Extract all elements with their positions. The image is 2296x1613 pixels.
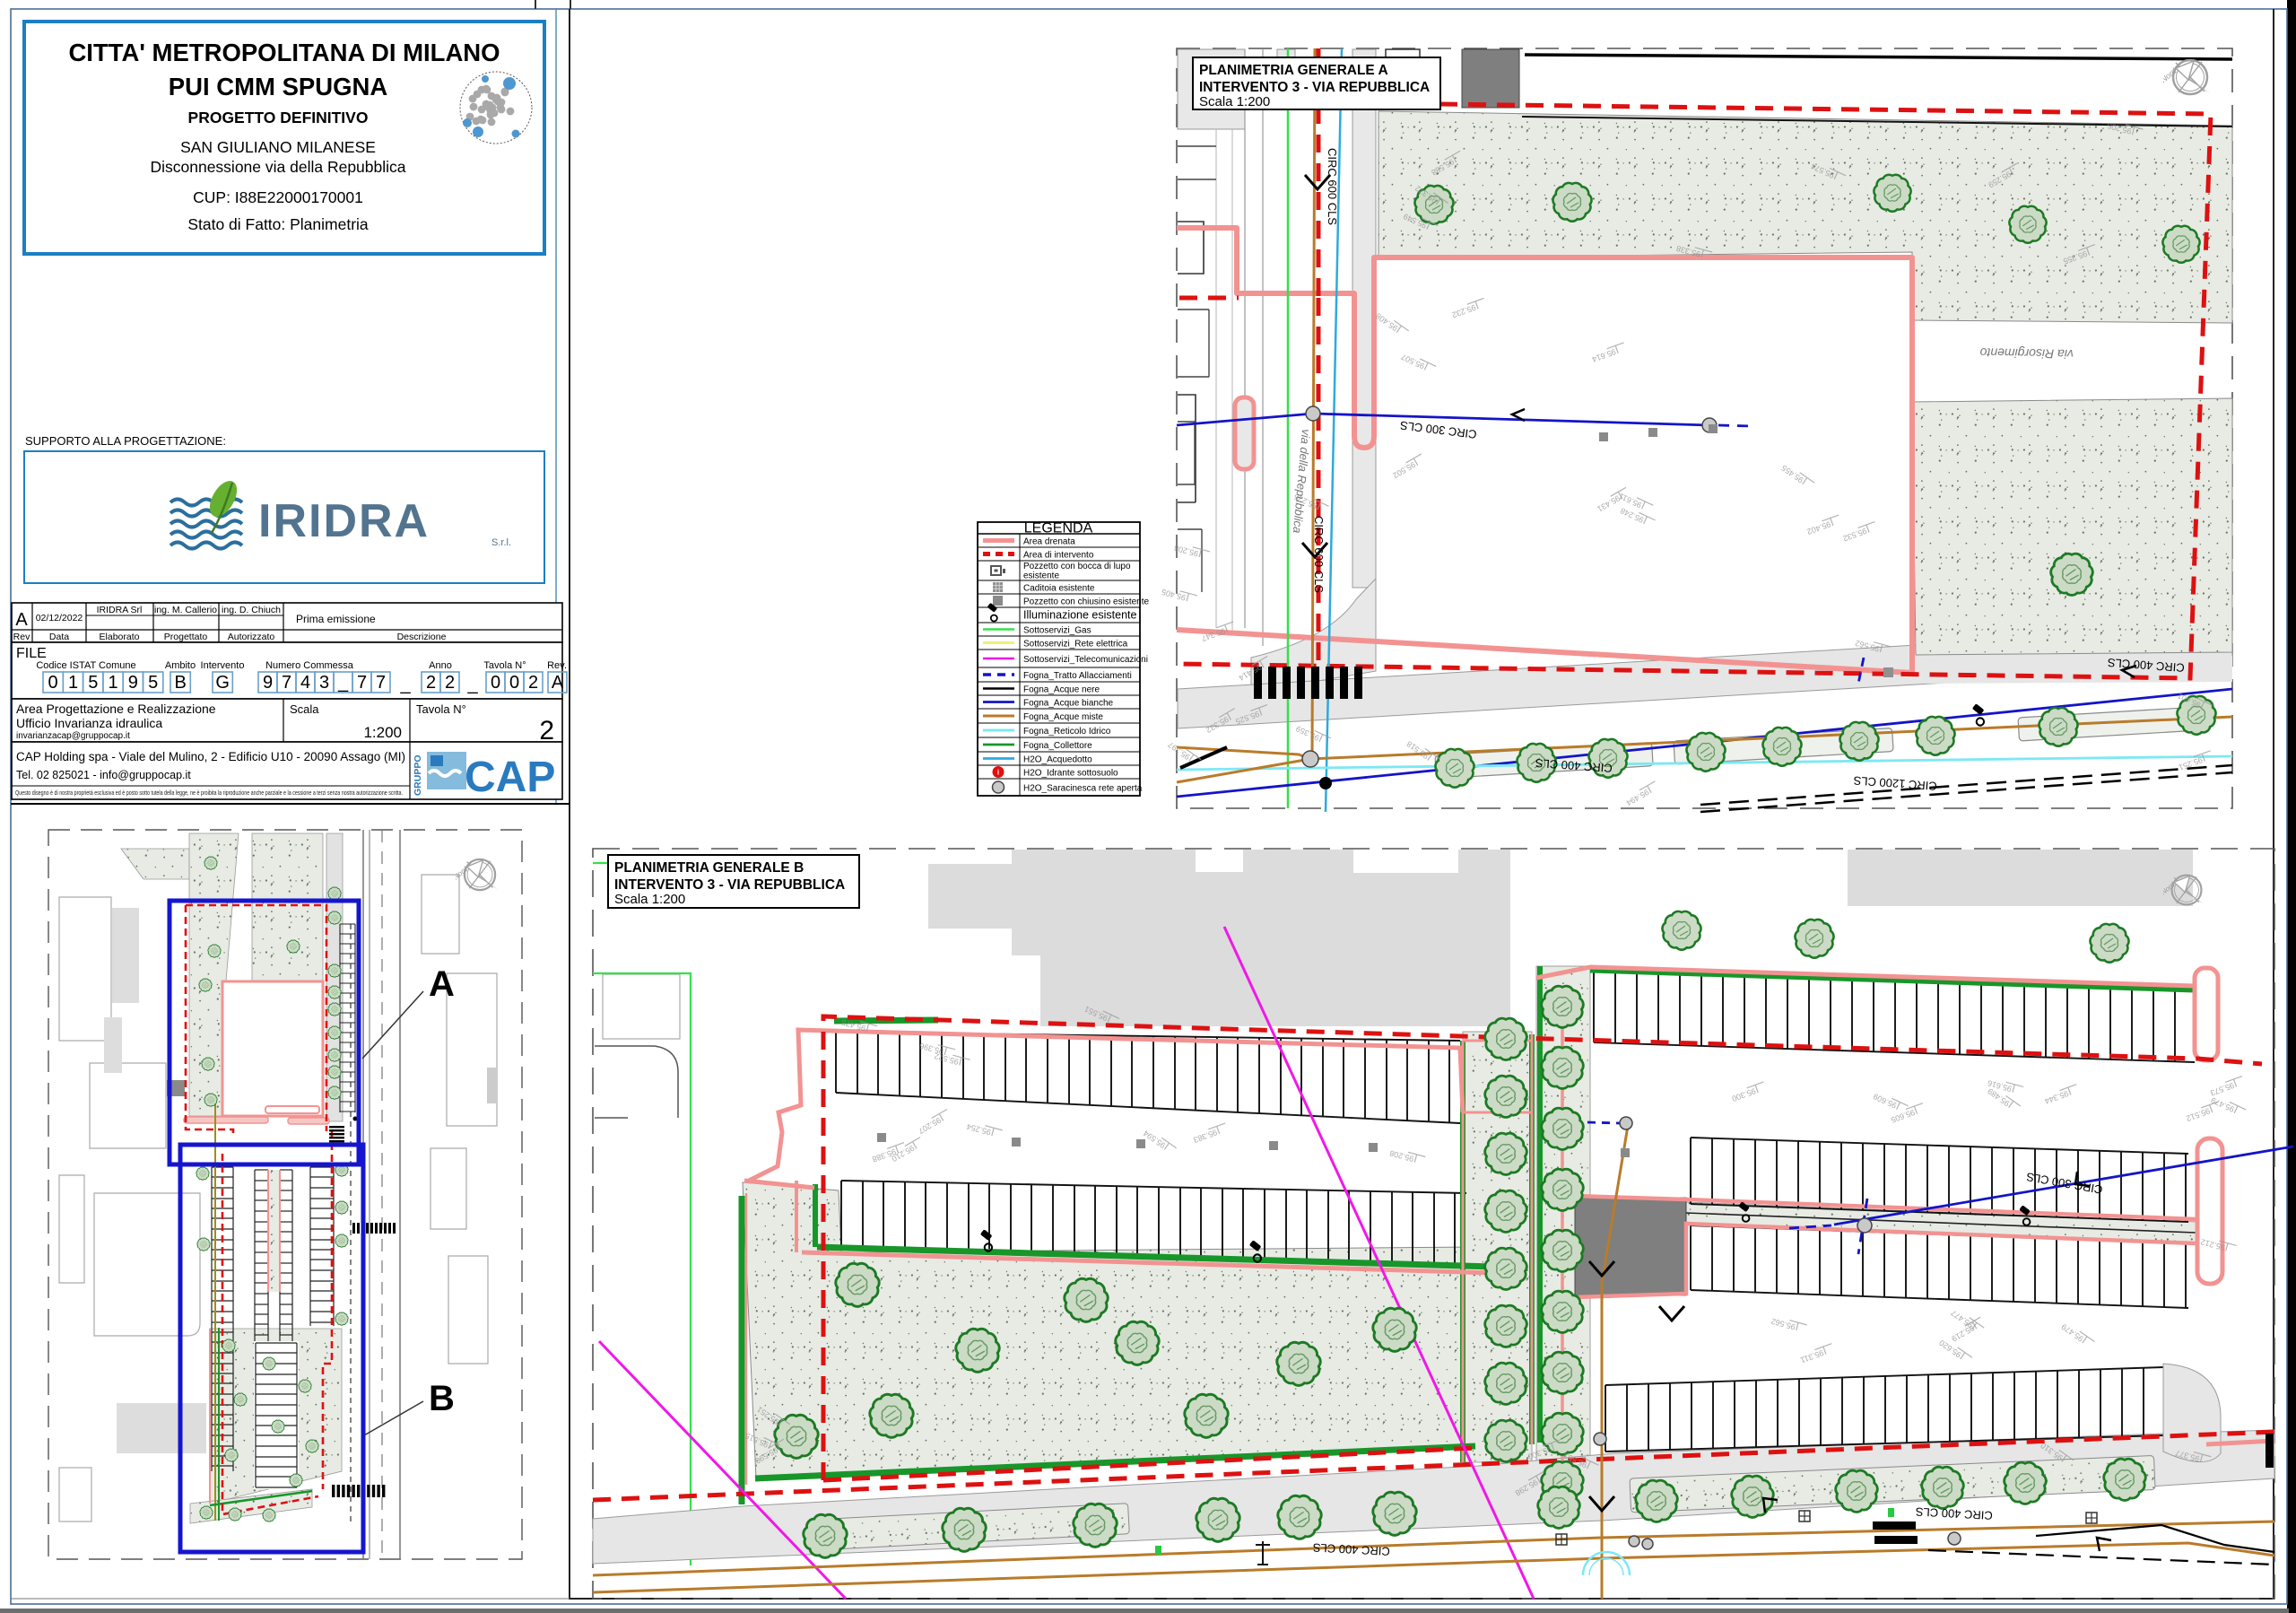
svg-text:5: 5: [148, 673, 158, 693]
svg-text:0: 0: [491, 673, 500, 693]
svg-text:Tel. 02 825021 - info@gruppoca: Tel. 02 825021 - info@gruppocap.it: [16, 769, 191, 781]
svg-text:Prima emissione: Prima emissione: [296, 613, 376, 625]
svg-text:Fogna_Tratto Allacciamenti: Fogna_Tratto Allacciamenti: [1023, 671, 1132, 681]
svg-text:CUP: I88E22000170001: CUP: I88E22000170001: [193, 188, 363, 206]
svg-text:PUI CMM SPUGNA: PUI CMM SPUGNA: [169, 73, 388, 100]
svg-text:Ufficio Invarianza idraulica: Ufficio Invarianza idraulica: [16, 716, 162, 730]
svg-text:0: 0: [509, 673, 519, 693]
svg-text:Anno: Anno: [429, 660, 452, 671]
svg-text:Tavola N°: Tavola N°: [416, 702, 466, 716]
svg-text:Intervento: Intervento: [201, 660, 245, 671]
svg-text:1: 1: [68, 673, 78, 693]
svg-text:9: 9: [263, 673, 273, 693]
svg-text:H2O_Acquedotto: H2O_Acquedotto: [1023, 755, 1092, 765]
svg-text:Rev.: Rev.: [547, 660, 567, 671]
svg-text:2: 2: [445, 673, 455, 693]
svg-text:Fogna_Collettore: Fogna_Collettore: [1023, 741, 1092, 751]
svg-text:Scala 1:200: Scala 1:200: [1199, 94, 1270, 109]
svg-text:GRUPPO: GRUPPO: [413, 754, 423, 796]
svg-text:ing. M. Callerio: ing. M. Callerio: [154, 605, 217, 615]
svg-text:0: 0: [48, 673, 58, 693]
svg-text:SAN GIULIANO MILANESE: SAN GIULIANO MILANESE: [180, 138, 376, 156]
svg-text:FILE: FILE: [16, 646, 47, 661]
svg-text:PROGETTO DEFINITIVO: PROGETTO DEFINITIVO: [188, 109, 369, 126]
svg-text:3: 3: [319, 673, 329, 693]
svg-text:Ambito: Ambito: [165, 660, 196, 671]
svg-text:1:200: 1:200: [363, 724, 402, 741]
svg-text:Scala 1:200: Scala 1:200: [614, 892, 685, 907]
svg-text:Tavola N°: Tavola N°: [483, 660, 526, 671]
svg-text:Sottoservizi_Telecomunicazioni: Sottoservizi_Telecomunicazioni: [1023, 655, 1148, 665]
svg-text:_: _: [466, 675, 478, 694]
svg-text:i: i: [997, 769, 999, 777]
svg-text:PLANIMETRIA GENERALE B: PLANIMETRIA GENERALE B: [614, 860, 804, 876]
svg-text:9: 9: [128, 673, 138, 693]
svg-text:Questo disegno è di nostra pro: Questo disegno è di nostra proprietà esc…: [15, 789, 403, 797]
svg-text:Area Progettazione e Realizzaz: Area Progettazione e Realizzazione: [16, 702, 216, 716]
svg-text:via Risorgimento: via Risorgimento: [1979, 345, 2074, 362]
svg-text:H2O_Saracinesca rete aperta: H2O_Saracinesca rete aperta: [1023, 784, 1143, 794]
svg-text:02/12/2022: 02/12/2022: [36, 613, 83, 623]
svg-text:B: B: [175, 673, 187, 693]
svg-text:_: _: [337, 673, 349, 693]
svg-text:B: B: [429, 1379, 455, 1418]
svg-text:PLANIMETRIA GENERALE A: PLANIMETRIA GENERALE A: [1199, 63, 1388, 78]
svg-text:H2O_Idrante sottosuolo: H2O_Idrante sottosuolo: [1023, 769, 1118, 779]
svg-text:A: A: [552, 673, 564, 693]
svg-text:Autorizzato: Autorizzato: [228, 632, 275, 642]
svg-text:SUPPORTO ALLA PROGETTAZIONE:: SUPPORTO ALLA PROGETTAZIONE:: [25, 434, 226, 448]
svg-text:7: 7: [376, 673, 386, 693]
svg-text:7: 7: [357, 673, 367, 693]
svg-text:Area drenata: Area drenata: [1023, 537, 1075, 547]
svg-text:Illuminazione esistente: Illuminazione esistente: [1023, 609, 1137, 622]
svg-text:Elaborato: Elaborato: [100, 632, 140, 642]
svg-text:2: 2: [426, 673, 436, 693]
svg-text:5: 5: [88, 673, 98, 693]
svg-text:1: 1: [109, 673, 118, 693]
svg-text:Stato di Fatto: Planimetria: Stato di Fatto: Planimetria: [187, 215, 369, 233]
svg-text:Scala: Scala: [290, 702, 319, 716]
svg-text:S.r.l.: S.r.l.: [491, 537, 511, 548]
svg-text:2: 2: [528, 673, 538, 693]
svg-text:Progettato: Progettato: [164, 632, 208, 642]
svg-text:7: 7: [282, 673, 291, 693]
svg-text:Fogna_Reticolo Idrico: Fogna_Reticolo Idrico: [1023, 727, 1111, 737]
svg-text:Data: Data: [49, 632, 69, 642]
svg-text:Fogna_Acque bianche: Fogna_Acque bianche: [1023, 699, 1114, 709]
svg-text:CAP Holding spa - Viale del Mu: CAP Holding spa - Viale del Mulino, 2 - …: [16, 750, 405, 763]
svg-text:CIRC 600 CLS: CIRC 600 CLS: [1326, 148, 1339, 225]
svg-text:Rev: Rev: [13, 632, 30, 642]
svg-text:IRIDRA: IRIDRA: [258, 495, 430, 547]
svg-text:Disconnessione via della Repub: Disconnessione via della Repubblica: [150, 158, 405, 176]
svg-text:ing. D. Chiuch: ing. D. Chiuch: [222, 605, 281, 615]
svg-text:Pozzetto con chiusino esistent: Pozzetto con chiusino esistente: [1023, 597, 1150, 607]
svg-text:Sottoservizi_Gas: Sottoservizi_Gas: [1023, 626, 1091, 636]
svg-text:IRIDRA Srl: IRIDRA Srl: [97, 605, 143, 615]
svg-text:A: A: [15, 610, 28, 630]
svg-text:Fogna_Acque nere: Fogna_Acque nere: [1023, 685, 1100, 695]
svg-text:2: 2: [539, 716, 554, 745]
svg-text:G: G: [215, 673, 230, 693]
svg-text:CAP: CAP: [465, 754, 555, 801]
svg-text:A: A: [429, 964, 455, 1004]
svg-text:Caditoia esistente: Caditoia esistente: [1023, 584, 1095, 594]
svg-text:INTERVENTO 3 - VIA REPUBBLICA: INTERVENTO 3 - VIA REPUBBLICA: [1199, 80, 1430, 95]
svg-text:invarianzacap@gruppocap.it: invarianzacap@gruppocap.it: [16, 731, 130, 741]
svg-text:Pozzetto con bocca di lupo: Pozzetto con bocca di lupo: [1023, 562, 1131, 571]
svg-text:esistente: esistente: [1023, 571, 1059, 581]
svg-text:CITTA' METROPOLITANA DI MILANO: CITTA' METROPOLITANA DI MILANO: [68, 39, 500, 66]
svg-text:Numero Commessa: Numero Commessa: [265, 660, 354, 671]
svg-text:Area di intervento: Area di intervento: [1023, 551, 1094, 561]
svg-text:INTERVENTO 3 - VIA REPUBBLICA: INTERVENTO 3 - VIA REPUBBLICA: [614, 877, 845, 893]
svg-text:CIRC 600 CLS: CIRC 600 CLS: [1312, 516, 1326, 593]
svg-text:Sottoservizi_Rete elettrica: Sottoservizi_Rete elettrica: [1023, 640, 1128, 650]
svg-text:Fogna_Acque miste: Fogna_Acque miste: [1023, 712, 1103, 722]
svg-text:_: _: [399, 675, 411, 694]
svg-text:Codice ISTAT Comune: Codice ISTAT Comune: [36, 660, 135, 671]
svg-text:4: 4: [300, 673, 310, 693]
svg-text:Descrizione: Descrizione: [397, 632, 447, 642]
